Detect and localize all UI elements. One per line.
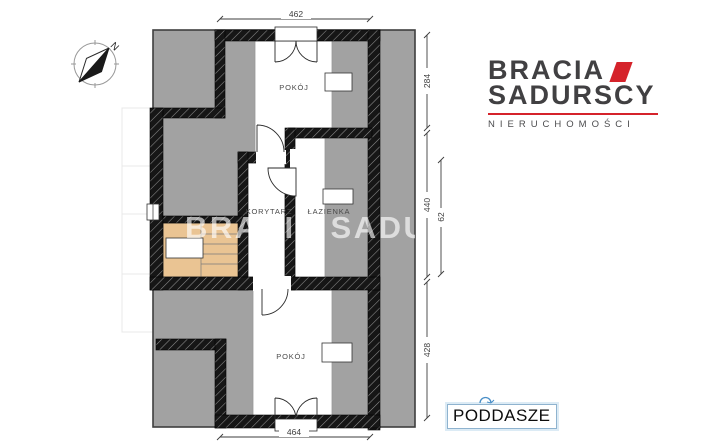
furniture-bathroom xyxy=(323,189,353,204)
dim-right-lower: 428 xyxy=(421,279,433,421)
logo-line2: SADURSCY xyxy=(488,83,678,108)
svg-text:464: 464 xyxy=(287,427,301,437)
logo-divider xyxy=(488,113,658,115)
room-label-pokoj-top: POKÓJ xyxy=(279,83,308,92)
room-label-korytarz: KORYTARZ xyxy=(246,207,293,216)
stairs-area xyxy=(163,223,243,277)
floor-label-rotation-handle[interactable] xyxy=(477,393,495,405)
svg-text:428: 428 xyxy=(422,343,432,357)
svg-text:62: 62 xyxy=(436,212,446,222)
furniture-bottom-room xyxy=(322,343,352,362)
room-label-lazienka: ŁAZIENKA xyxy=(308,207,351,216)
floor-label-box[interactable]: PODDASZE xyxy=(447,404,557,429)
dim-right-middle: 440 xyxy=(421,130,433,280)
compass-needle-dark xyxy=(79,48,109,82)
stairs-landing xyxy=(166,238,203,258)
svg-text:440: 440 xyxy=(422,198,432,212)
window-left xyxy=(147,204,159,220)
logo-roof-icon xyxy=(609,62,632,82)
svg-text:284: 284 xyxy=(422,74,432,88)
compass: N xyxy=(71,40,121,88)
compass-n-label: N xyxy=(108,40,121,53)
svg-text:462: 462 xyxy=(289,9,303,19)
furniture-top-room xyxy=(325,73,352,91)
dim-right-upper: 284 xyxy=(421,32,433,131)
logo-tagline: NIERUCHOMOŚCI xyxy=(488,119,678,130)
dim-right-inner: 62 xyxy=(435,157,447,277)
dim-top: 462 xyxy=(217,8,373,22)
room-label-pokoj-bottom: POKÓJ xyxy=(276,352,305,361)
agency-logo: BRACIA SADURSCY NIERUCHOMOŚCI xyxy=(488,58,678,130)
